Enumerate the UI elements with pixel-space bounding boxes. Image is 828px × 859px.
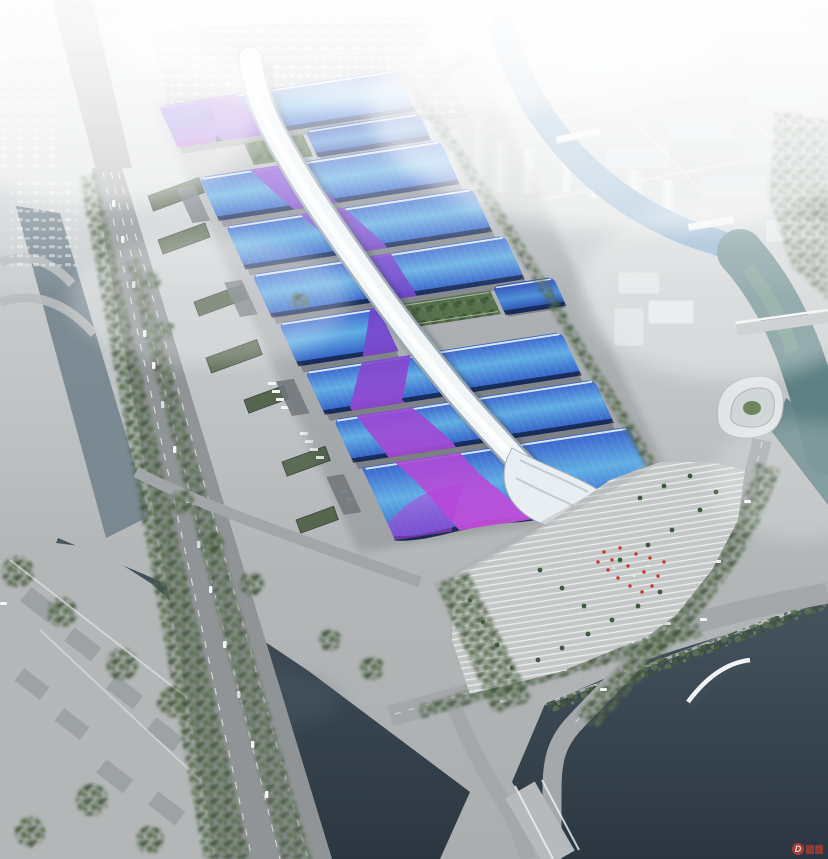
watermark-logo-icon: D (792, 843, 804, 855)
watermark: D (792, 843, 823, 855)
watermark-glyphs (806, 845, 823, 854)
aerial-rendering: D (0, 0, 828, 859)
